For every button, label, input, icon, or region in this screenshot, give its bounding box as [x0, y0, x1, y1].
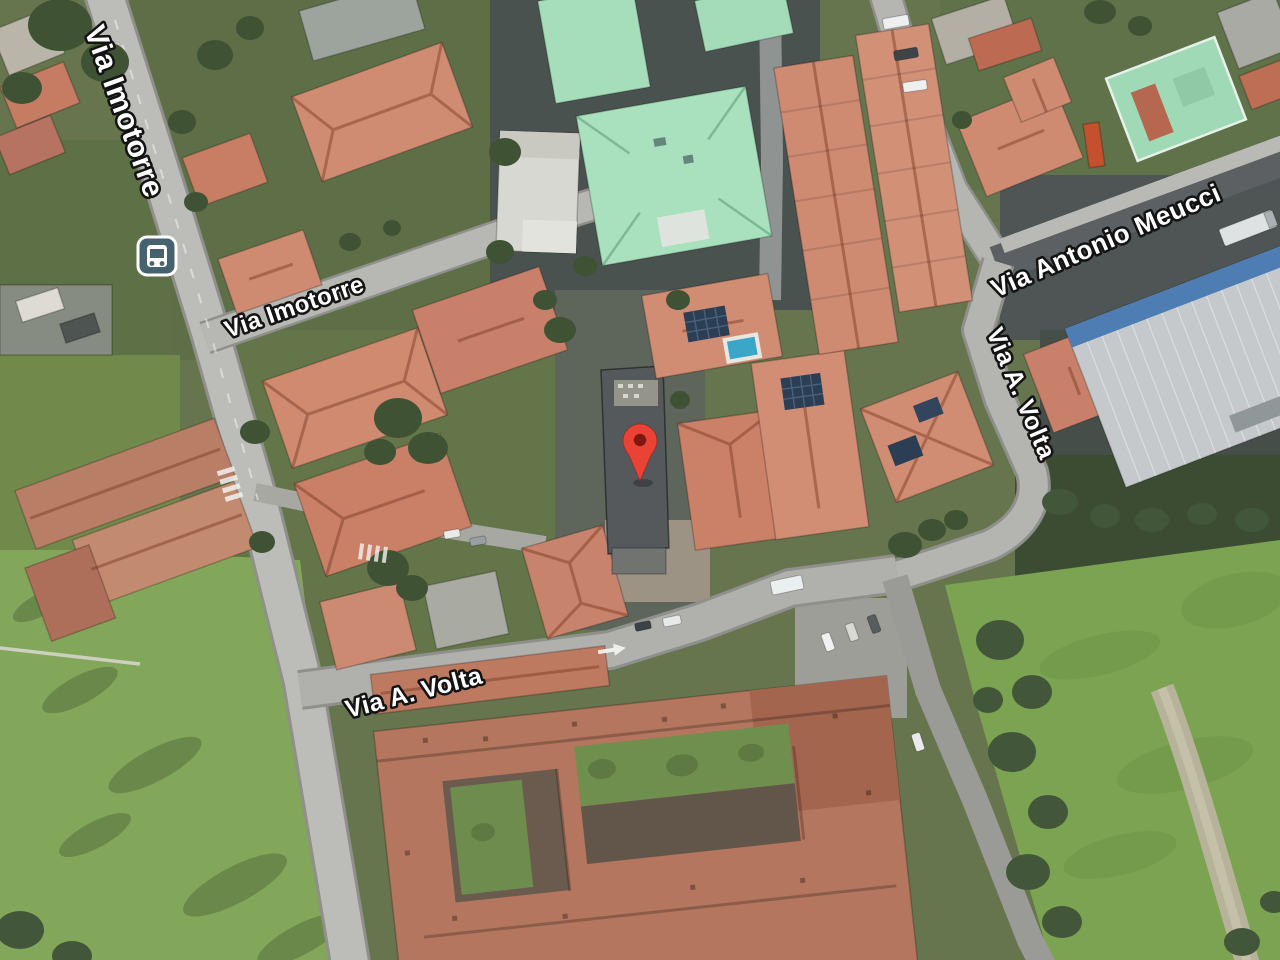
map-canvas: Via Imotorre Via Imotorre Via Antonio Me… [0, 0, 1280, 960]
bus-icon [147, 245, 167, 267]
pin-shadow [633, 479, 653, 487]
pin-dot [634, 434, 646, 446]
transit-stop[interactable] [138, 237, 176, 275]
satellite-map[interactable]: Via Imotorre Via Imotorre Via Antonio Me… [0, 0, 1280, 960]
